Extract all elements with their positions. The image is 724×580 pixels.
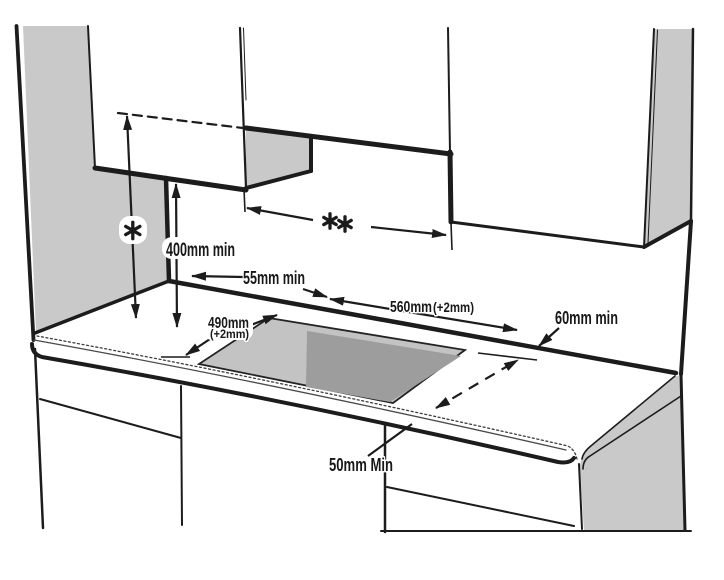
svg-text:560mm: 560mm [390, 299, 432, 316]
svg-text:(+2mm): (+2mm) [210, 327, 249, 341]
svg-text:(+2mm): (+2mm) [433, 300, 474, 315]
svg-text:60mm min: 60mm min [555, 308, 618, 328]
svg-text:50mm Min: 50mm Min [329, 455, 393, 475]
svg-text:400mm min: 400mm min [166, 240, 235, 261]
svg-text:55mm min: 55mm min [243, 268, 305, 288]
